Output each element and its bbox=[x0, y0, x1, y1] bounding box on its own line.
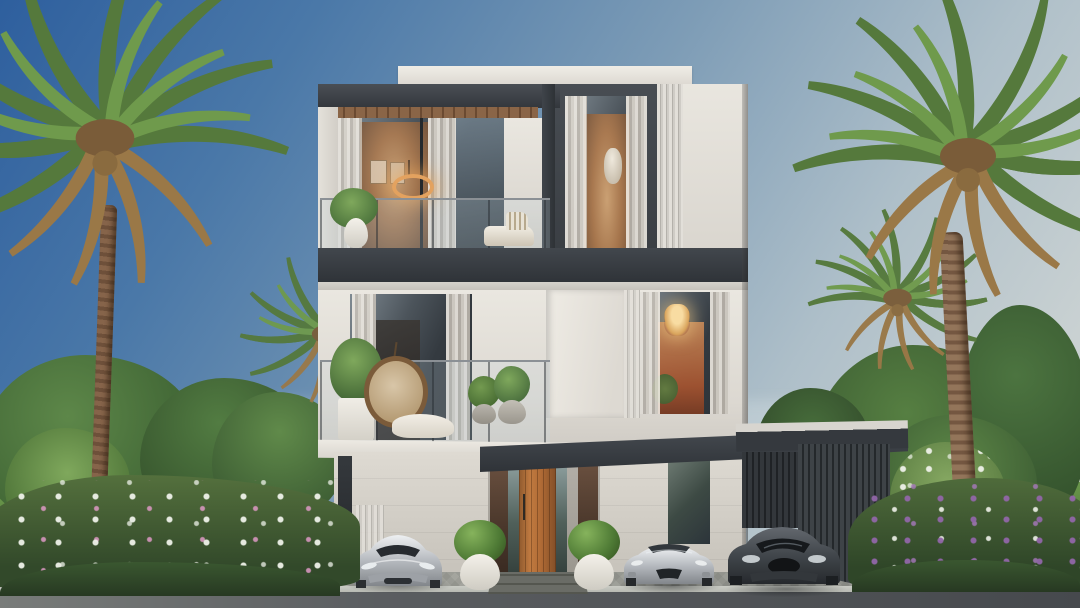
door-handle bbox=[523, 494, 525, 520]
balcony-shrub-pot-1 bbox=[472, 404, 496, 424]
middle-ribbed-strip bbox=[624, 290, 640, 418]
upper-left-fascia bbox=[318, 84, 560, 108]
right-palm-canopy bbox=[768, 0, 1080, 324]
pendant-ring-light bbox=[392, 174, 434, 200]
glass-sidelight-left bbox=[508, 462, 519, 572]
art-frame-1 bbox=[370, 160, 387, 184]
entrance-planter-left bbox=[460, 554, 500, 590]
left-palm-canopy bbox=[0, 0, 315, 314]
crystal-chandelier bbox=[664, 304, 690, 336]
glass-sidelight-right bbox=[556, 462, 567, 572]
balcony-shrub-pot-2 bbox=[498, 400, 526, 424]
floor-band-dark bbox=[318, 248, 748, 284]
egg-chair-blanket bbox=[392, 414, 454, 438]
villa-building bbox=[318, 64, 748, 572]
middle-right-curtain-right bbox=[710, 292, 730, 414]
dark-sports-car bbox=[720, 512, 848, 592]
silver-sports-car bbox=[344, 522, 452, 592]
interior-sculpture bbox=[604, 148, 622, 184]
middle-right-curtain-left bbox=[640, 292, 660, 414]
villa-render-scene bbox=[0, 0, 1080, 608]
silver-convertible bbox=[618, 528, 720, 590]
entrance-planter-right bbox=[574, 554, 614, 590]
upper-balcony-pot bbox=[344, 218, 368, 248]
lounge-chair-back bbox=[506, 212, 528, 230]
middle-bright-panel bbox=[546, 290, 624, 418]
